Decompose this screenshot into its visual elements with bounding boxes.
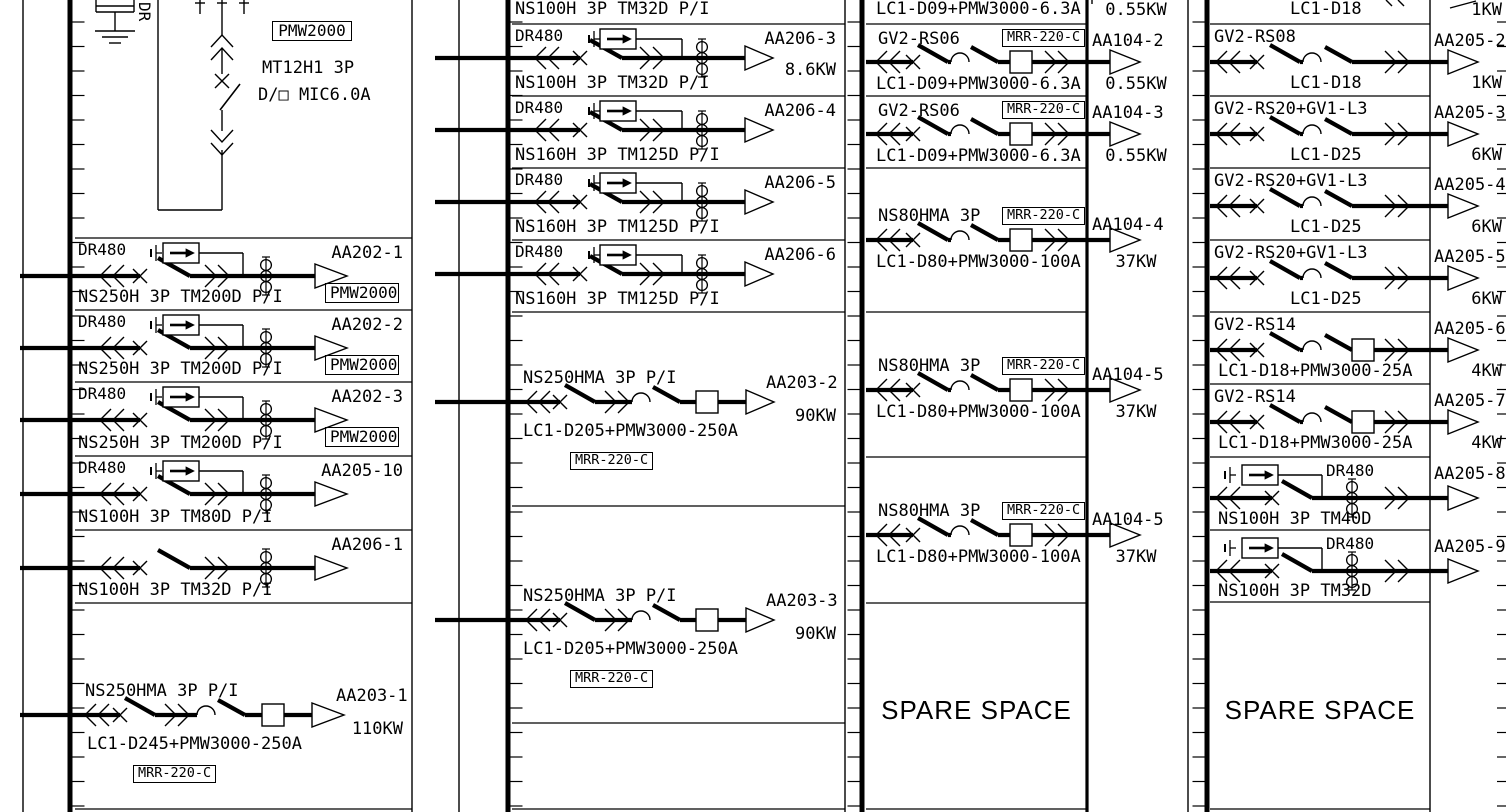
device-label: GV2-RS20+GV1-L3 (1214, 173, 1368, 190)
power-rating: 0.55KW (1092, 2, 1180, 19)
circuit-id: AA206-5 (760, 175, 836, 192)
power-rating: 1KW (1434, 2, 1502, 19)
power-rating: 0.55KW (1092, 76, 1180, 93)
power-rating: 4KW (1434, 363, 1502, 380)
contactor-model: LC1-D25 (1290, 147, 1362, 164)
circuit-id: AA104-2 (1092, 33, 1164, 50)
circuit-id: AA202-3 (310, 389, 403, 406)
circuit-id: AA205-8 (1434, 466, 1506, 483)
load-arrow-icon (1448, 559, 1478, 583)
enclosure-outline (158, 0, 222, 210)
circuit-id: AA205-2 (1434, 33, 1506, 50)
power-rating: 37KW (1092, 254, 1180, 271)
device-label: DR480 (515, 100, 563, 116)
circuit-id: AA205-3 (1434, 105, 1506, 122)
load-arrow-icon (1110, 122, 1140, 146)
switch-blade-icon (1270, 189, 1300, 206)
rcd-box-icon (163, 461, 199, 481)
device-label: NS80HMA 3P (878, 358, 980, 375)
incoming-vertical-tag: DR (136, 2, 152, 21)
device-label: DR480 (1326, 536, 1374, 552)
meter-box: PMW2000 (272, 21, 352, 41)
relay-box: MRR-220-C (570, 670, 653, 688)
relay-box: MRR-220-C (133, 765, 216, 783)
device-label: GV2-RS08 (1214, 29, 1296, 46)
contactor-model: LC1-D80+PMW3000-100A (876, 549, 1081, 566)
overload-icon (1303, 125, 1321, 134)
contactor-model: LC1-D205+PMW3000-250A (523, 423, 738, 440)
contactor-model: LC1-D09+PMW3000-6.3A (876, 148, 1081, 165)
terminal-box-icon (1352, 411, 1374, 433)
power-rating: 37KW (1092, 404, 1180, 421)
rcd-box-icon (1242, 465, 1278, 485)
device-label: DR480 (515, 172, 563, 188)
device-label: DR480 (515, 28, 563, 44)
relay-box: MRR-220-C (1002, 502, 1085, 520)
terminal-box-icon (696, 391, 718, 413)
relay-box: MRR-220-C (1002, 101, 1085, 119)
switch-blade-icon (1270, 261, 1300, 278)
overload-icon (1303, 341, 1321, 350)
terminal-box-icon (1010, 229, 1032, 251)
terminal-box-icon (1010, 524, 1032, 546)
circuit-id: AA104-4 (1092, 217, 1164, 234)
meter-box: PMW2000 (325, 355, 399, 375)
power-rating: 1KW (1434, 75, 1502, 92)
rcd-sensor-icon (1225, 467, 1236, 483)
breaker-model: NS100H 3P TM32D P/I (515, 75, 709, 92)
overload-icon (197, 706, 215, 715)
device-label: DR480 (78, 314, 126, 330)
overload-icon (632, 611, 650, 620)
load-arrow-icon (1448, 410, 1478, 434)
circuit-id: AA206-3 (760, 31, 836, 48)
breaker-model: NS160H 3P TM125D P/I (515, 147, 720, 164)
relay-box: MRR-220-C (1002, 29, 1085, 47)
breaker-model: NS100H 3P TM32D P/I (78, 582, 272, 599)
spare-space-label: SPARE SPACE (866, 697, 1087, 723)
breaker-model: NS100H 3P TM32D P/I (515, 1, 709, 18)
terminal-box-icon (1010, 379, 1032, 401)
power-rating: 110KW (336, 721, 403, 738)
power-rating: 90KW (766, 626, 836, 643)
device-label: GV2-RS06 (878, 31, 960, 48)
switch-blade-icon (971, 375, 998, 390)
switch-blade-icon (1270, 117, 1300, 134)
power-rating: 6KW (1434, 219, 1502, 236)
breaker-model: NS100H 3P TM40D (1218, 511, 1372, 528)
terminal-box-icon (1010, 123, 1032, 145)
power-rating: 90KW (766, 408, 836, 425)
switch-blade-icon (1282, 554, 1312, 571)
surge-arrester-icons (195, 0, 249, 14)
incoming-breaker-icon (211, 14, 240, 210)
power-rating: 4KW (1434, 435, 1502, 452)
circuit-row (435, 245, 773, 293)
circuit-id: AA205-10 (310, 463, 403, 480)
load-arrow-icon (1448, 122, 1478, 146)
rcd-box-icon (600, 101, 636, 121)
load-arrow-icon (745, 118, 773, 142)
ground-icon (95, 0, 135, 43)
contactor-model: LC1-D18 (1290, 75, 1362, 92)
breaker-model: NS100H 3P TM32D (1218, 583, 1372, 600)
breaker-model: NS250H 3P TM200D P/I (78, 289, 283, 306)
overload-icon (1303, 413, 1321, 422)
circuit-id: AA205-7 (1434, 393, 1506, 410)
switch-blade-icon (1325, 335, 1352, 350)
power-rating: 37KW (1092, 549, 1180, 566)
circuit-row (435, 101, 773, 149)
switch-blade-icon (971, 47, 998, 62)
bus-ticks (848, 22, 860, 806)
power-rating: 8.6KW (760, 62, 836, 79)
device-label: DR480 (78, 460, 126, 476)
circuit-row (435, 385, 774, 414)
meter-box: PMW2000 (325, 427, 399, 447)
device-label: NS80HMA 3P (878, 503, 980, 520)
power-rating: 0.55KW (1092, 148, 1180, 165)
meter-box: PMW2000 (325, 283, 399, 303)
device-label: GV2-RS14 (1214, 389, 1296, 406)
bus-ticks (1193, 22, 1205, 806)
contactor-model: LC1-D09+PMW3000-6.3A (876, 76, 1081, 93)
switch-blade-icon (1325, 119, 1352, 134)
switch-blade-icon (1270, 45, 1300, 62)
switch-blade-icon (1325, 47, 1352, 62)
switch-blade-icon (1325, 263, 1352, 278)
contactor-model: LC1-D18+PMW3000-25A (1218, 363, 1412, 380)
power-rating: 6KW (1434, 147, 1502, 164)
terminal-box-icon (1010, 51, 1032, 73)
circuit-row (435, 173, 773, 221)
breaker-model: NS250HMA 3P P/I (523, 370, 677, 387)
overload-icon (951, 231, 969, 240)
load-arrow-icon (1448, 338, 1478, 362)
switch-blade-icon (653, 387, 680, 402)
circuit-id: AA205-4 (1434, 177, 1506, 194)
device-label: GV2-RS14 (1214, 317, 1296, 334)
switch-blade-icon (1282, 481, 1312, 498)
switch-blade-icon (653, 605, 680, 620)
load-arrow-icon (315, 556, 347, 580)
circuit-id: AA104-3 (1092, 105, 1164, 122)
overload-icon (951, 53, 969, 62)
device-label: DR480 (78, 386, 126, 402)
breaker-model: NS250HMA 3P P/I (85, 683, 239, 700)
circuit-id: AA206-4 (760, 103, 836, 120)
power-rating: 6KW (1434, 291, 1502, 308)
load-arrow-icon (1110, 50, 1140, 74)
overload-icon (951, 526, 969, 535)
switch-blade-icon (1270, 405, 1300, 422)
contactor-model: LC1-D18 (1290, 1, 1362, 18)
load-arrow-icon (1448, 266, 1478, 290)
rcd-box-icon (163, 315, 199, 335)
contactor-model: LC1-D09+PMW3000-6.3A (876, 1, 1081, 18)
relay-box: MRR-220-C (1002, 357, 1085, 375)
contactor-model: LC1-D25 (1290, 219, 1362, 236)
rcd-sensor-icon (1225, 540, 1236, 556)
device-label: GV2-RS06 (878, 103, 960, 120)
circuit-id: AA104-5 (1092, 512, 1164, 529)
incoming-bay (95, 0, 249, 210)
load-arrow-icon (745, 190, 773, 214)
circuit-id: AA104-5 (1092, 367, 1164, 384)
spare-space-label: SPARE SPACE (1210, 697, 1430, 723)
incoming-trip-unit: D/□ MIC6.0A (258, 87, 371, 104)
load-arrow-icon (315, 482, 347, 506)
switch-blade-icon (1325, 191, 1352, 206)
contactor-model: LC1-D245+PMW3000-250A (87, 736, 302, 753)
switch-blade-icon (1325, 407, 1352, 422)
overload-icon (951, 381, 969, 390)
breaker-model: NS160H 3P TM125D P/I (515, 291, 720, 308)
incoming-breaker-model: MT12H1 3P (262, 60, 354, 77)
circuit-id: AA203-1 (336, 688, 403, 705)
breaker-model: NS250H 3P TM200D P/I (78, 361, 283, 378)
contactor-model: LC1-D25 (1290, 291, 1362, 308)
breaker-model: NS250H 3P TM200D P/I (78, 435, 283, 452)
circuit-id: AA202-2 (310, 317, 403, 334)
circuit-id: AA202-1 (310, 245, 403, 262)
breaker-model: NS100H 3P TM80D P/I (78, 509, 272, 526)
circuit-id: AA206-1 (310, 537, 403, 554)
load-arrow-icon (1448, 50, 1478, 74)
contactor-model: LC1-D205+PMW3000-250A (523, 641, 738, 658)
switch-blade-icon (1270, 333, 1300, 350)
terminal-box-icon (262, 704, 284, 726)
contactor-model: LC1-D18+PMW3000-25A (1218, 435, 1412, 452)
switch-blade-icon (971, 225, 998, 240)
rcd-box-icon (163, 243, 199, 263)
load-arrow-icon (745, 262, 773, 286)
overload-icon (1303, 197, 1321, 206)
terminal-box-icon (696, 609, 718, 631)
contactor-model: LC1-D80+PMW3000-100A (876, 254, 1081, 271)
bus-ticks (73, 22, 85, 806)
rcd-box-icon (1242, 538, 1278, 558)
overload-icon (951, 125, 969, 134)
rcd-box-icon (600, 173, 636, 193)
contact-x-icon (215, 74, 229, 88)
circuit-id: AA205-5 (1434, 249, 1506, 266)
circuit-id: AA203-3 (766, 593, 836, 610)
breaker-model: NS160H 3P TM125D P/I (515, 219, 720, 236)
switch-blade-icon (158, 550, 190, 568)
switch-blade-icon (971, 520, 998, 535)
bus-ticks (511, 22, 523, 806)
rcd-box-icon (600, 29, 636, 49)
device-label: DR480 (1326, 463, 1374, 479)
device-label: NS80HMA 3P (878, 208, 980, 225)
switch-blade-icon (218, 700, 245, 715)
rcd-box-icon (600, 245, 636, 265)
device-label: DR480 (78, 242, 126, 258)
circuit-id: AA205-6 (1434, 321, 1506, 338)
breaker-model: NS250HMA 3P P/I (523, 588, 677, 605)
device-label: GV2-RS20+GV1-L3 (1214, 101, 1368, 118)
relay-box: MRR-220-C (1002, 207, 1085, 225)
circuit-row (435, 603, 774, 632)
terminal-box-icon (1352, 339, 1374, 361)
device-label: DR480 (515, 244, 563, 260)
circuit-id: AA206-6 (760, 247, 836, 264)
load-arrow-icon (1448, 194, 1478, 218)
edge-ticks (1497, 22, 1506, 806)
relay-box: MRR-220-C (570, 452, 653, 470)
switch-blade-icon (971, 119, 998, 134)
rcd-box-icon (163, 387, 199, 407)
contactor-model: LC1-D80+PMW3000-100A (876, 404, 1081, 421)
load-arrow-icon (1448, 486, 1478, 510)
overload-icon (1303, 53, 1321, 62)
circuit-id: AA205-9 (1434, 539, 1506, 556)
overload-icon (1303, 269, 1321, 278)
single-line-diagram: DRPMW2000MT12H1 3PD/□ MIC6.0ADR480NS250H… (0, 0, 1506, 812)
circuit-id: AA203-2 (766, 375, 836, 392)
device-label: GV2-RS20+GV1-L3 (1214, 245, 1368, 262)
circuit-row (435, 29, 773, 77)
overload-icon (632, 393, 650, 402)
